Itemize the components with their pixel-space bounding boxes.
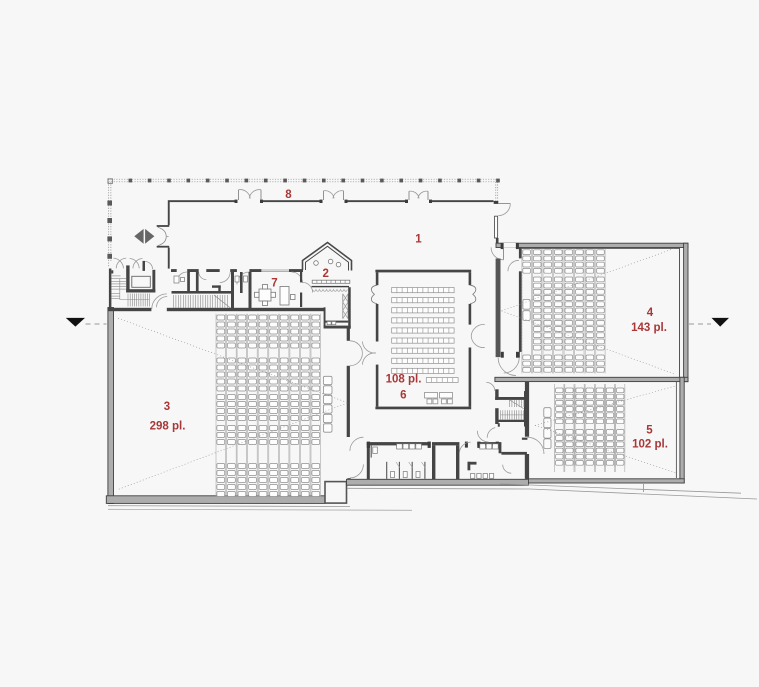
svg-text:4: 4	[647, 307, 654, 319]
svg-text:3: 3	[164, 401, 170, 413]
svg-text:108 pl.: 108 pl.	[386, 374, 422, 386]
svg-text:7: 7	[271, 277, 277, 289]
svg-text:143 pl.: 143 pl.	[631, 322, 667, 334]
svg-text:6: 6	[400, 390, 406, 402]
svg-text:8: 8	[285, 189, 292, 201]
svg-text:2: 2	[322, 268, 328, 280]
svg-text:1: 1	[415, 233, 422, 245]
svg-text:298 pl.: 298 pl.	[150, 421, 186, 433]
svg-text:5: 5	[646, 424, 653, 436]
svg-text:102 pl.: 102 pl.	[632, 439, 668, 451]
